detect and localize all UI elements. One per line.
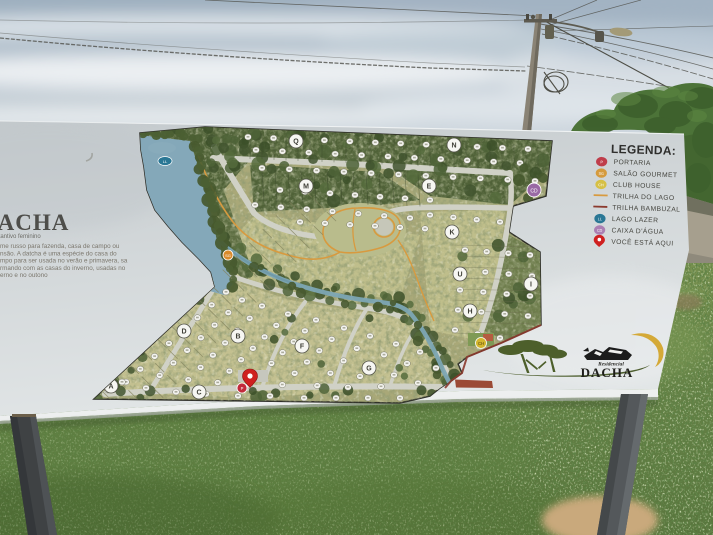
svg-text:mpo para ser usada no verão e: mpo para ser usada no verão e primavera,… [0,258,128,265]
svg-text:D: D [181,328,186,335]
svg-text:LL: LL [598,217,602,221]
svg-text:SG: SG [225,253,231,258]
svg-text:Q: Q [293,138,299,145]
svg-text:K: K [449,229,454,236]
svg-text:LAGO LAZER: LAGO LAZER [612,216,659,224]
svg-text:PORTARIA: PORTARIA [614,159,651,167]
svg-text:B: B [235,333,240,340]
svg-text:me russo para fazenda, casa de: me russo para fazenda, casa de campo ou [0,243,120,250]
svg-text:DACHA: DACHA [0,210,69,235]
svg-text:CLUB HOUSE: CLUB HOUSE [613,182,661,190]
svg-text:CH: CH [478,341,484,346]
svg-text:rmando com as casas do inverno: rmando com as casas do inverno, usadas n… [0,265,126,272]
svg-text:LL: LL [163,159,168,164]
svg-text:E: E [427,183,432,190]
svg-text:N: N [451,142,456,149]
svg-text:nsão. A datcha é uma espécie d: nsão. A datcha é uma espécie do casa do [0,250,117,257]
svg-text:DACHA: DACHA [581,365,634,380]
svg-text:F: F [300,343,305,350]
svg-text:H: H [467,308,472,315]
svg-text:SG: SG [598,172,604,176]
svg-text:substantivo feminino: substantivo feminino [0,234,41,240]
svg-text:CH: CH [598,183,604,187]
svg-text:M: M [303,183,309,190]
svg-text:P: P [241,386,244,391]
svg-text:I: I [530,281,532,288]
svg-text:G: G [366,365,372,372]
svg-text:CD: CD [530,189,538,195]
svg-text:LEGENDA:: LEGENDA: [611,142,676,158]
svg-text:erno e no outono: erno e no outono [0,272,48,279]
svg-text:U: U [457,271,462,278]
svg-text:C: C [196,389,201,396]
svg-text:CD: CD [597,229,603,233]
